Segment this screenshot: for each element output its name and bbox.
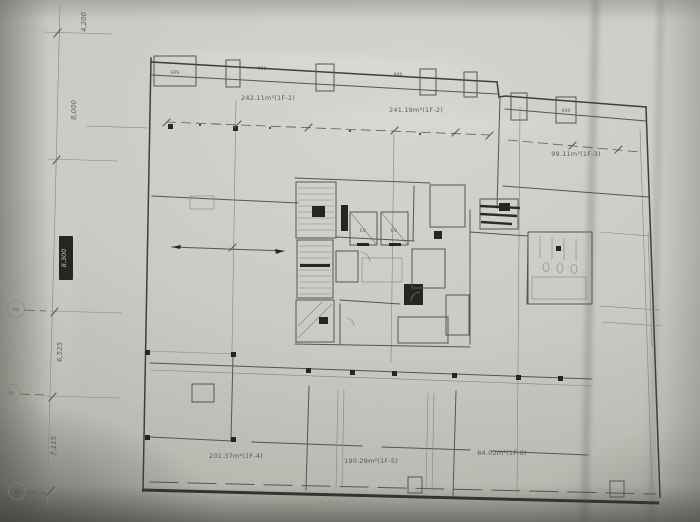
room-label-top-center: 241.19m²(1F-2) xyxy=(389,106,443,114)
dimension-label: 7,115 xyxy=(50,435,58,456)
wall-dimension-label: 900 xyxy=(394,72,403,78)
structural-columns xyxy=(145,124,563,442)
dimension-label: 8,300 xyxy=(60,249,68,268)
wall-dimension-label: 900 xyxy=(258,66,267,72)
elevator-label: EV xyxy=(391,228,398,234)
grid-bubble-label: Y1 xyxy=(13,489,20,495)
room-label-bottom-left: 201.37m²(1F-4) xyxy=(209,452,263,460)
room-labels: 242.11m²(1F-1) 241.19m²(1F-2) 99.11m²(1F… xyxy=(171,66,601,465)
wall-dimension-label: 600 xyxy=(562,108,571,114)
grid-bubbles: Y3 Y2 Y1 xyxy=(3,301,47,500)
room-label-top-left: 242.11m²(1F-1) xyxy=(241,94,295,102)
dimension-label: 6,525 xyxy=(56,341,64,362)
dimension-label: 8,000 xyxy=(70,99,78,120)
left-dimension-string: 4,200 8,000 8,300 6,525 7,115 xyxy=(42,6,148,505)
grid-bubble-label: Y2 xyxy=(7,391,14,397)
room-label-bottom-center: 190.29m²(1F-5) xyxy=(344,457,398,465)
floor-plan-photo: 4,200 8,000 8,300 6,525 7,115 Y3 Y2 Y1 xyxy=(0,0,700,522)
stair-elevator-core xyxy=(295,178,528,347)
elevator-label: EV xyxy=(360,228,367,234)
dimension-label: 4,200 xyxy=(80,11,88,32)
shaft-label: EPS xyxy=(171,70,180,76)
grid-bubble-label: Y3 xyxy=(12,307,19,313)
room-label-bottom-right: 84.02m²(1F-6) xyxy=(477,449,527,457)
